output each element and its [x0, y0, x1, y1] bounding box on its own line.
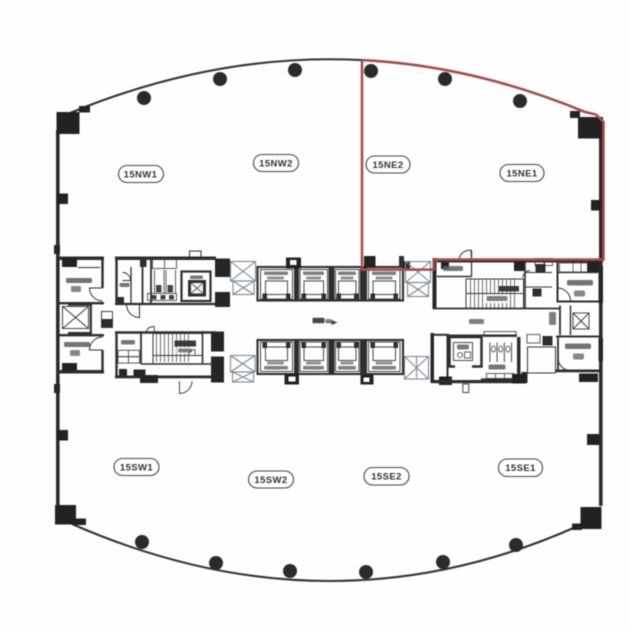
- svg-text:15SW2: 15SW2: [254, 475, 287, 486]
- svg-text:15NE1: 15NE1: [506, 169, 537, 180]
- svg-text:15SE1: 15SE1: [505, 463, 536, 474]
- svg-text:15NW2: 15NW2: [259, 159, 293, 170]
- svg-text:15NW1: 15NW1: [124, 170, 158, 181]
- svg-text:15NE2: 15NE2: [372, 160, 403, 171]
- svg-text:15SE2: 15SE2: [371, 472, 402, 483]
- svg-text:15SW1: 15SW1: [120, 463, 153, 474]
